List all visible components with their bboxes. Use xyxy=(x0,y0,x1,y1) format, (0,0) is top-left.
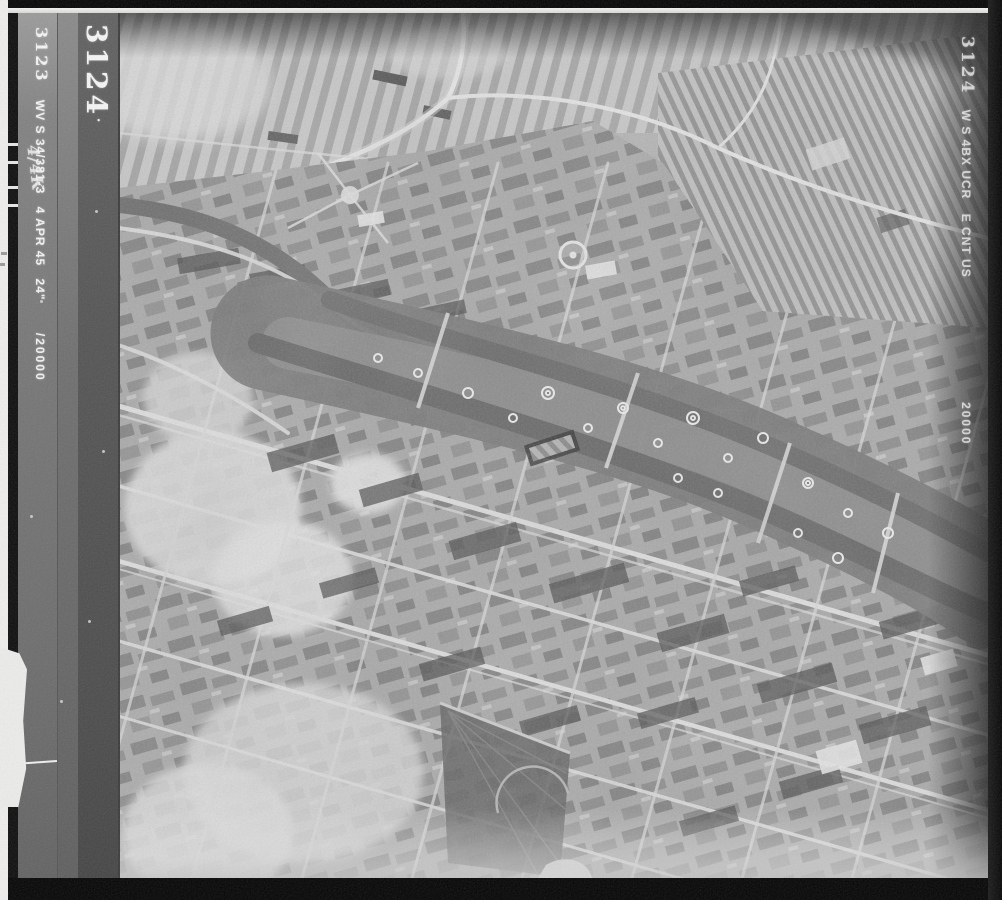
date-stamp: 4 APR 45 xyxy=(33,207,47,267)
dust-speck xyxy=(102,450,105,453)
top-paper-strip xyxy=(8,8,988,13)
torn-paper-patch xyxy=(0,647,27,807)
dust-speck xyxy=(95,210,98,213)
focal-length: 24" xyxy=(33,279,47,301)
registration-tick xyxy=(8,161,18,164)
aerial-photo xyxy=(118,13,988,878)
frame-number-large: 3124. xyxy=(79,24,113,134)
left-margin-annotation: 3123 WV S 34/381-3 4 APR 45 24" /20000 4… xyxy=(33,27,51,407)
right-film-edge xyxy=(988,0,1002,900)
right-frame-number: 3124 xyxy=(957,36,977,95)
registration-tick xyxy=(8,186,18,189)
right-scale-number: 20000 xyxy=(959,402,973,445)
film-strip-current-frame xyxy=(78,13,120,878)
registration-tick xyxy=(8,204,18,207)
scale-number: /20000 xyxy=(33,333,47,382)
film-grain xyxy=(118,13,988,878)
film-scan: 3123 WV S 34/381-3 4 APR 45 24" /20000 4… xyxy=(0,0,1002,900)
edge-smudge xyxy=(1,252,7,255)
edge-smudge xyxy=(0,263,5,266)
aerial-scene xyxy=(118,13,988,878)
right-text-fragments: E CNT US xyxy=(959,214,973,278)
adjacent-frame-number: 3123 xyxy=(32,27,51,84)
dust-speck xyxy=(60,700,63,703)
bottom-film-edge xyxy=(8,878,1002,900)
dust-speck xyxy=(88,620,91,623)
frame-number-text: 3124 xyxy=(80,24,113,118)
right-sortie-code: W S 4BX UCR xyxy=(959,110,973,200)
registration-tick xyxy=(8,143,18,146)
dust-speck xyxy=(30,515,33,518)
strip-separator xyxy=(57,13,79,878)
top-film-edge xyxy=(8,0,1002,8)
emulsion-speck: . xyxy=(94,118,108,126)
right-margin-annotation: 3124 W S 4BX UCR E CNT US 20000 xyxy=(957,36,977,576)
